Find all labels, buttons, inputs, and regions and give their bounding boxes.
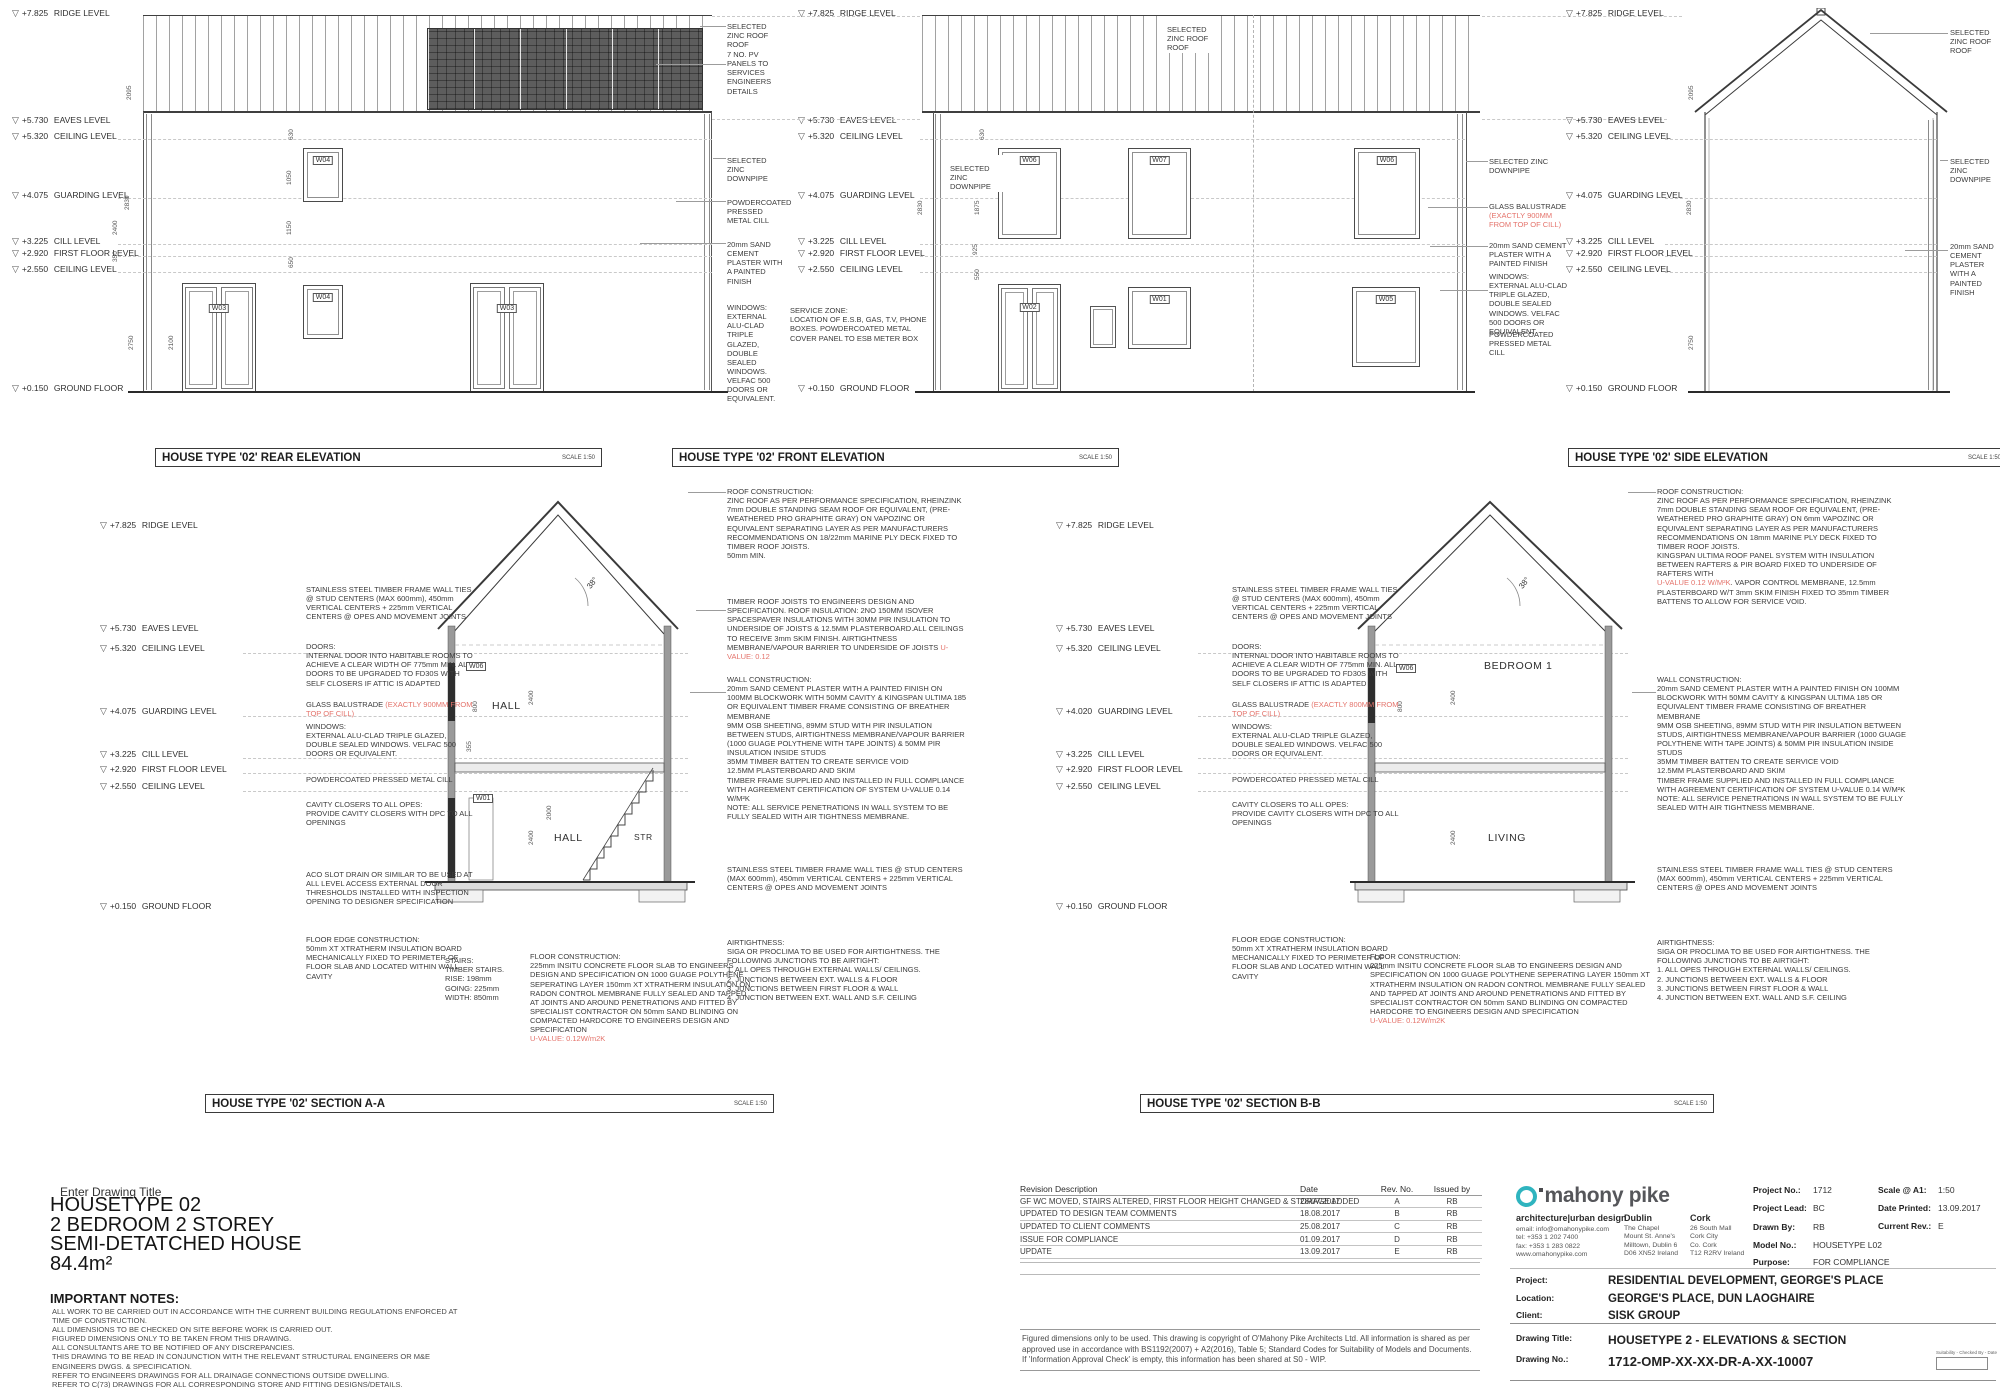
office-line: Mount St. Anne's (1624, 1233, 1678, 1241)
level-triangle-icon (1056, 749, 1063, 759)
level-triangle-icon (100, 643, 107, 653)
annotation-note: GLASS BALUSTRADE (EXACTLY 900MM FROM TOP… (1489, 202, 1569, 229)
level-marker: +5.320CEILING LEVEL (12, 131, 117, 141)
level-dash-line (1665, 256, 1937, 257)
level-marker: +3.225CILL LEVEL (100, 749, 188, 759)
contact-line: tel: +353 1 202 7400 (1516, 1234, 1609, 1242)
room-label: STR (634, 832, 653, 842)
logo-apostrophe-icon (1539, 1188, 1543, 1192)
level-dash-line (712, 16, 920, 17)
divider (1020, 1274, 1480, 1275)
window-tag: W01 (473, 794, 493, 803)
level-triangle-icon (100, 764, 107, 774)
window-tag: W02 (1019, 303, 1039, 312)
dimension-label: 350 (112, 251, 119, 262)
leader-line (1466, 161, 1488, 162)
architectural-drawing-sheet: +7.825RIDGE LEVEL +5.730EAVES LEVEL +5.3… (0, 0, 2000, 1388)
field-row: Drawn By:RB (1753, 1222, 1825, 1232)
level-dash-line (118, 244, 712, 245)
level-triangle-icon (100, 706, 107, 716)
side-elevation-titlebar: HOUSE TYPE '02' SIDE ELEVATION SCALE 1:5… (1568, 448, 2000, 467)
leader-line (656, 64, 726, 65)
dimension-label: 1875 (974, 201, 981, 215)
office-lines: The ChapelMount St. Anne'sMilltown, Dubl… (1624, 1225, 1678, 1259)
dimension-label: 550 (974, 269, 981, 280)
company-tagline: architecture|urban design (1516, 1213, 1627, 1223)
window-tag: W07 (1149, 156, 1169, 165)
contact-line: fax: +353 1 283 0822 (1516, 1243, 1609, 1251)
annotation-note: SELECTED ZINC DOWNPIPE (1489, 157, 1569, 175)
rear-elevation-titlebar: HOUSE TYPE '02' REAR ELEVATION SCALE 1:5… (155, 448, 602, 467)
annotation-note: POWDERCOATED PRESSED METAL CILL (727, 198, 785, 225)
annotation-note: 20mm SAND CEMENT PLASTER WITH A PAINTED … (1950, 242, 1997, 297)
level-marker: +2.920FIRST FLOOR LEVEL (798, 248, 925, 258)
project-info-row: Project:RESIDENTIAL DEVELOPMENT, GEORGE'… (1516, 1275, 1883, 1287)
level-triangle-icon (12, 383, 19, 393)
window: W05 (1352, 287, 1420, 367)
annotation-note: CAVITY CLOSERS TO ALL OPES: PROVIDE CAVI… (306, 800, 478, 827)
drawing-title: HOUSE TYPE '02' FRONT ELEVATION (679, 452, 885, 464)
revision-table: Revision Description Date Rev. No. Issue… (1020, 1183, 1482, 1259)
annotation-note: GLASS BALUSTRADE (EXACTLY 900MM FROM TOP… (306, 700, 478, 718)
level-marker: +3.225CILL LEVEL (1566, 236, 1654, 246)
level-triangle-icon (12, 248, 19, 258)
office-lines: 26 South MallCork CityCo. CorkT12 R2RV I… (1690, 1225, 1744, 1259)
level-marker: +3.225CILL LEVEL (12, 236, 100, 246)
leader-line (1628, 492, 1656, 493)
level-dash-line (712, 119, 920, 120)
dimension-label: 2750 (128, 336, 135, 350)
level-triangle-icon (100, 781, 107, 791)
level-dash-line (920, 139, 1465, 140)
level-triangle-icon (100, 623, 107, 633)
front-roof-note: SELECTED ZINC ROOF ROOF (1167, 16, 1219, 53)
annotation-note: POWDERCOATED PRESSED METAL CILL (1232, 775, 1404, 784)
pv-panels (427, 28, 703, 110)
annotation-note: STAINLESS STEEL TIMBER FRAME WALL TIES @… (1657, 865, 1907, 892)
scale-label: SCALE 1:50 (562, 455, 595, 461)
annotation-note: DOORS: INTERNAL DOOR INTO HABITABLE ROOM… (306, 642, 478, 688)
level-triangle-icon (1566, 248, 1573, 258)
leader-line (690, 692, 726, 693)
level-dash-line (920, 244, 1465, 245)
annotation-note: TIMBER ROOF JOISTS TO ENGINEERS DESIGN A… (727, 597, 967, 661)
dimension-label: 2000 (546, 806, 553, 820)
leader-line (700, 26, 726, 27)
drawing-title: HOUSE TYPE '02' SECTION B-B (1147, 1098, 1321, 1110)
important-note-line: ALL WORK TO BE CARRIED OUT IN ACCORDANCE… (52, 1307, 457, 1316)
level-dash-line (1665, 272, 1937, 273)
level-marker: +2.550CEILING LEVEL (1566, 264, 1671, 274)
leader-line (696, 610, 726, 611)
window-tag: W06 (1019, 156, 1039, 165)
level-marker: +5.320CEILING LEVEL (100, 643, 205, 653)
leader-line (1440, 290, 1488, 291)
divider (1020, 1262, 1480, 1263)
leader-line (1870, 33, 1948, 34)
section-a-titlebar: HOUSE TYPE '02' SECTION A-A SCALE 1:50 (205, 1094, 774, 1113)
front-downpipe-left (935, 114, 941, 390)
field-row: Scale @ A1:1:50 (1878, 1185, 1955, 1195)
office-line: T12 R2RV Ireland (1690, 1250, 1744, 1258)
annotation-note: WINDOWS: EXTERNAL ALU-CLAD TRIPLE GLAZED… (727, 303, 785, 404)
room-label: HALL (492, 700, 521, 712)
divider (1510, 1268, 1996, 1269)
project-info-row: Client:SISK GROUP (1516, 1310, 1680, 1322)
omahony-pike-logo: mahony pike (1516, 1184, 1670, 1208)
level-triangle-icon (798, 248, 805, 258)
important-note-line: ENGINEERS DWGS. & SPECIFICATION. (52, 1362, 457, 1371)
level-triangle-icon (1056, 706, 1063, 716)
level-marker: +7.825RIDGE LEVEL (100, 520, 198, 530)
important-note-line: FIGURED DIMENSIONS ONLY TO BE TAKEN FROM… (52, 1334, 457, 1343)
floor-construction-note: FLOOR CONSTRUCTION: 225mm INSITU CONCRET… (530, 943, 755, 1044)
leader-line (1905, 250, 1948, 251)
level-marker: +2.920FIRST FLOOR LEVEL (100, 764, 227, 774)
dimension-label: 2830 (1686, 201, 1693, 215)
divider (1510, 1323, 1996, 1324)
office-line: 26 South Mall (1690, 1225, 1744, 1233)
important-note-line: THIS DRAWING TO BE READ IN CONJUNCTION W… (52, 1352, 457, 1361)
annotation-note: WINDOWS: EXTERNAL ALU-CLAD TRIPLE GLAZED… (1489, 272, 1569, 336)
drawing-title: HOUSE TYPE '02' SECTION A-A (212, 1098, 385, 1110)
important-notes: ALL WORK TO BE CARRIED OUT IN ACCORDANCE… (52, 1307, 457, 1388)
level-triangle-icon (1056, 764, 1063, 774)
important-note-line: ALL DIMENSIONS TO BE CHECKED ON SITE BEF… (52, 1325, 457, 1334)
level-marker: +2.550CEILING LEVEL (1056, 781, 1161, 791)
dimension-label: 925 (972, 244, 979, 255)
dimension-label: 2750 (1688, 336, 1695, 350)
revision-row: ISSUE FOR COMPLIANCE 01.09.2017 D RB (1020, 1233, 1482, 1246)
office-line: Milltown, Dublin 6 (1624, 1242, 1678, 1250)
level-marker: +4.075GUARDING LEVEL (12, 190, 129, 200)
contact-line: www.omahonypike.com (1516, 1251, 1609, 1259)
logo-o-icon (1516, 1186, 1537, 1207)
annotation-note: DOORS: INTERNAL DOOR INTO HABITABLE ROOM… (1232, 642, 1404, 688)
floor-construction-note: FLOOR CONSTRUCTION: 225mm INSITU CONCRET… (1370, 943, 1660, 1025)
annotation-note: 20mm SAND CEMENT PLASTER WITH A PAINTED … (727, 240, 785, 286)
level-triangle-icon (1056, 643, 1063, 653)
drawing-title: HOUSE TYPE '02' REAR ELEVATION (162, 452, 361, 464)
level-marker: +2.550CEILING LEVEL (798, 264, 903, 274)
annotation-note: WINDOWS: EXTERNAL ALU-CLAD TRIPLE GLAZED… (306, 722, 478, 759)
level-marker: +2.550CEILING LEVEL (100, 781, 205, 791)
field-row: Project Lead:BC (1753, 1203, 1825, 1213)
service-zone-note: SERVICE ZONE: LOCATION OF E.S.B, GAS, T.… (790, 297, 930, 343)
level-marker: +5.730EAVES LEVEL (12, 115, 110, 125)
annotation-note: WALL CONSTRUCTION: 20mm SAND CEMENT PLAS… (1657, 675, 1907, 812)
annotation-note: STAINLESS STEEL TIMBER FRAME WALL TIES @… (306, 585, 478, 622)
level-triangle-icon (100, 901, 107, 911)
level-marker: +0.150GROUND FLOOR (1566, 383, 1677, 393)
level-marker: +2.550CEILING LEVEL (12, 264, 117, 274)
dimension-label: 630 (288, 129, 295, 140)
level-triangle-icon (12, 115, 19, 125)
door-leaf (509, 287, 541, 389)
scale-label: SCALE 1:50 (1968, 455, 2000, 461)
window: W01 (1128, 287, 1191, 349)
leader-line (1430, 246, 1488, 247)
window: W06 (1354, 148, 1420, 239)
dimension-label: 1150 (286, 221, 293, 235)
dimension-label: 650 (288, 257, 295, 268)
important-note-line: TIME OF CONSTRUCTION. (52, 1316, 457, 1325)
leader-line (640, 243, 726, 244)
level-marker: +0.150GROUND FLOOR (12, 383, 123, 393)
level-triangle-icon (1566, 264, 1573, 274)
level-triangle-icon (1566, 190, 1573, 200)
level-marker: +4.075GUARDING LEVEL (798, 190, 915, 200)
scale-label: SCALE 1:50 (1079, 455, 1112, 461)
room-label: HALL (554, 832, 583, 844)
field-row: Purpose:FOR COMPLIANCE (1753, 1257, 1890, 1267)
leader-line (676, 201, 726, 202)
level-marker: +7.825RIDGE LEVEL (1566, 8, 1664, 18)
front-elevation-titlebar: HOUSE TYPE '02' FRONT ELEVATION SCALE 1:… (672, 448, 1119, 467)
annotation-note: AIRTIGHTNESS: SIGA OR PROCLIMA TO BE USE… (1657, 938, 1907, 1002)
level-triangle-icon (12, 236, 19, 246)
level-marker: +5.730EAVES LEVEL (1056, 623, 1154, 633)
level-triangle-icon (12, 8, 19, 18)
annotation-note: 20mm SAND CEMENT PLASTER WITH A PAINTED … (1489, 241, 1569, 268)
level-triangle-icon (1566, 383, 1573, 393)
revision-table-header: Revision Description Date Rev. No. Issue… (1020, 1183, 1482, 1196)
level-marker: +0.150GROUND FLOOR (798, 383, 909, 393)
window-tag: W01 (1149, 295, 1169, 304)
dimension-label: 630 (979, 129, 986, 140)
level-triangle-icon (798, 383, 805, 393)
level-dash-line (1665, 198, 1937, 199)
housetype-title-line: SEMI-DETATCHED HOUSE (50, 1235, 302, 1255)
level-marker: +5.730EAVES LEVEL (100, 623, 198, 633)
office-line: The Chapel (1624, 1225, 1678, 1233)
door-leaf (221, 287, 253, 389)
dublin-office: Dublin The ChapelMount St. Anne'sMilltow… (1624, 1213, 1678, 1259)
level-triangle-icon (12, 131, 19, 141)
leader-line (1632, 692, 1656, 693)
level-dash-line (118, 139, 712, 140)
annotation-note: STAINLESS STEEL TIMBER FRAME WALL TIES @… (727, 865, 967, 892)
level-marker: +4.075GUARDING LEVEL (100, 706, 217, 716)
annotation-note: ACO SLOT DRAIN OR SIMILAR TO BE USED AT … (306, 870, 478, 907)
rear-downpipe-right (704, 114, 710, 390)
annotation-note: SELECTED ZINC DOWNPIPE (727, 156, 785, 183)
level-triangle-icon (1566, 115, 1573, 125)
office-line: D06 XN52 Ireland (1624, 1250, 1678, 1258)
annotation-note: SELECTED ZINC DOWNPIPE (1950, 157, 1997, 184)
level-triangle-icon (12, 264, 19, 274)
side-ground-line (1688, 391, 1950, 393)
field-row: Project No.:1712 (1753, 1185, 1832, 1195)
level-triangle-icon (798, 190, 805, 200)
level-marker: +0.150GROUND FLOOR (1056, 901, 1167, 911)
office-line: Cork City (1690, 1233, 1744, 1241)
level-marker: +2.920FIRST FLOOR LEVEL (1056, 764, 1183, 774)
level-triangle-icon (798, 131, 805, 141)
annotation-note: CAVITY CLOSERS TO ALL OPES: PROVIDE CAVI… (1232, 800, 1404, 827)
level-triangle-icon (1566, 131, 1573, 141)
housetype-title: HOUSETYPE 022 BEDROOM 2 STOREYSEMI-DETAT… (50, 1196, 302, 1274)
front-downpipe-right (1457, 114, 1463, 390)
window-tag: W03 (209, 304, 229, 313)
level-triangle-icon (1566, 8, 1573, 18)
housetype-title-line: 84.4m² (50, 1255, 302, 1275)
level-dash-line (1665, 244, 1937, 245)
field-row: Model No.:HOUSETYPE L02 (1753, 1240, 1882, 1250)
dimension-label: 2400 (528, 831, 535, 845)
level-triangle-icon (1056, 781, 1063, 791)
window-tag: W04 (313, 293, 333, 302)
leader-line (1428, 207, 1488, 208)
door: W03 (182, 283, 256, 393)
important-notes-title: IMPORTANT NOTES: (50, 1291, 179, 1306)
window: W04 (303, 148, 343, 202)
company-contact: email: info@omahonypike.comtel: +353 1 2… (1516, 1226, 1609, 1260)
dimension-label: 2400 (528, 691, 535, 705)
level-triangle-icon (100, 749, 107, 759)
suitability-box (1936, 1357, 1988, 1370)
dimension-label: 2095 (1688, 86, 1695, 100)
window-tag: W06 (466, 662, 486, 671)
front-ground-line (915, 391, 1475, 393)
annotation-note: POWDERCOATED PRESSED METAL CILL (1489, 330, 1569, 357)
level-triangle-icon (1056, 901, 1063, 911)
door-leaf (473, 287, 505, 389)
window: W04 (303, 285, 343, 339)
level-marker: +5.730EAVES LEVEL (1566, 115, 1664, 125)
level-triangle-icon (100, 520, 107, 530)
window-tag: W06 (1377, 156, 1397, 165)
office-title: Dublin (1624, 1213, 1678, 1223)
room-label: BEDROOM 1 (1484, 660, 1552, 672)
front-downpipe-note: SELECTED ZINC DOWNPIPE (950, 155, 1008, 192)
level-dash-line (920, 272, 1465, 273)
revision-row: GF WC MOVED, STAIRS ALTERED, FIRST FLOOR… (1020, 1196, 1482, 1209)
window-tag: W04 (313, 156, 333, 165)
level-marker: +3.225CILL LEVEL (798, 236, 886, 246)
level-triangle-icon (1056, 623, 1063, 633)
door-leaf (185, 287, 217, 389)
dimension-label: 2830 (124, 196, 131, 210)
level-marker: +5.320CEILING LEVEL (1056, 643, 1161, 653)
office-line: Co. Cork (1690, 1242, 1744, 1250)
dimension-label: 2400 (1450, 831, 1457, 845)
revision-row: UPDATE 13.09.2017 E RB (1020, 1246, 1482, 1259)
level-triangle-icon (798, 236, 805, 246)
window-tag: W03 (497, 304, 517, 313)
annotation-note: SELECTED ZINC ROOF ROOF (1950, 28, 1997, 55)
scale-label: SCALE 1:50 (734, 1101, 767, 1107)
leader-line (688, 492, 726, 493)
annotation-note: STAINLESS STEEL TIMBER FRAME WALL TIES @… (1232, 585, 1404, 622)
housetype-title-line: HOUSETYPE 02 (50, 1196, 302, 1216)
annotation-note: GLASS BALUSTRADE (EXACTLY 800MM FROM TOP… (1232, 700, 1404, 718)
revision-row: UPDATED TO DESIGN TEAM COMMENTS 18.08.20… (1020, 1208, 1482, 1221)
level-marker: +5.730EAVES LEVEL (798, 115, 896, 125)
contact-line: email: info@omahonypike.com (1516, 1226, 1609, 1234)
level-marker: +7.825RIDGE LEVEL (1056, 520, 1154, 530)
field-row: Date Printed:13.09.2017 (1878, 1203, 1981, 1213)
rear-ground-line (128, 391, 728, 393)
drawing-info-row: Drawing Title:HOUSETYPE 2 - ELEVATIONS &… (1516, 1333, 1846, 1347)
revision-row: UPDATED TO CLIENT COMMENTS 25.08.2017 C … (1020, 1221, 1482, 1234)
stairs-note: STAIRS: TIMBER STAIRS. RISE: 198mm GOING… (445, 947, 525, 1002)
scale-label: SCALE 1:50 (1674, 1101, 1707, 1107)
field-row: Current Rev.:E (1878, 1221, 1944, 1231)
level-dash-line (1665, 139, 1937, 140)
drawing-info-row: Drawing No.:1712-OMP-XX-XX-DR-A-XX-10007 (1516, 1354, 1813, 1369)
dimension-label: 1050 (286, 171, 293, 185)
copyright-disclaimer: Figured dimensions only to be used. This… (1020, 1329, 1480, 1371)
level-triangle-icon (798, 115, 805, 125)
level-dash-line (920, 256, 1465, 257)
annotation-note: SELECTED ZINC ROOF ROOF (727, 22, 785, 49)
dimension-label: 2400 (112, 221, 119, 235)
annotation-note: ROOF CONSTRUCTION: ZINC ROOF AS PER PERF… (1657, 487, 1907, 606)
section-b-titlebar: HOUSE TYPE '02' SECTION B-B SCALE 1:50 (1140, 1094, 1714, 1113)
leader-line (1940, 160, 1948, 161)
level-marker: +4.020GUARDING LEVEL (1056, 706, 1173, 716)
side-downpipe (1928, 120, 1934, 390)
level-triangle-icon (798, 264, 805, 274)
project-info-row: Location:GEORGE'S PLACE, DUN LAOGHAIRE (1516, 1293, 1815, 1305)
important-note-line: ALL CONSULTANTS ARE TO BE NOTIFIED OF AN… (52, 1343, 457, 1352)
drawing-title: HOUSE TYPE '02' SIDE ELEVATION (1575, 452, 1768, 464)
annotation-note: ROOF CONSTRUCTION: ZINC ROOF AS PER PERF… (727, 487, 967, 560)
level-marker: +0.150GROUND FLOOR (100, 901, 211, 911)
window-tag: W06 (1396, 664, 1416, 673)
cork-office: Cork 26 South MallCork CityCo. CorkT12 R… (1690, 1213, 1744, 1259)
level-marker: +5.320CEILING LEVEL (798, 131, 903, 141)
level-dash-line (118, 198, 712, 199)
annotation-note: POWDERCOATED PRESSED METAL CILL (306, 775, 478, 784)
dimension-label: 2100 (168, 336, 175, 350)
level-triangle-icon (12, 190, 19, 200)
level-triangle-icon (1566, 236, 1573, 246)
annotation-note: AIRTIGHTNESS: SIGA OR PROCLIMA TO BE USE… (727, 938, 967, 1002)
important-note-line: REFER TO ENGINEERS DRAWINGS FOR ALL DRAI… (52, 1371, 457, 1380)
door: W02 (998, 284, 1061, 393)
rear-downpipe-left (146, 114, 152, 390)
room-label: LIVING (1488, 832, 1526, 844)
annotation-note: 7 NO. PV PANELS TO SERVICES ENGINEERS DE… (727, 50, 785, 96)
logo-text: mahony pike (1545, 1184, 1670, 1208)
level-dash-line (118, 272, 712, 273)
dimension-label: 2400 (1450, 691, 1457, 705)
level-marker: +3.225CILL LEVEL (1056, 749, 1144, 759)
window: W07 (1128, 148, 1191, 239)
level-marker: +5.320CEILING LEVEL (1566, 131, 1671, 141)
level-marker: +7.825RIDGE LEVEL (12, 8, 110, 18)
level-dash-line (118, 256, 712, 257)
divider (1510, 1380, 1996, 1381)
level-triangle-icon (1056, 520, 1063, 530)
leader-line (713, 158, 726, 159)
important-note-line: REFER TO C(73) DRAWINGS FOR ALL CORRESPO… (52, 1380, 457, 1388)
annotation-note: WALL CONSTRUCTION: 20mm SAND CEMENT PLAS… (727, 675, 967, 821)
dimension-label: 2830 (917, 201, 924, 215)
annotation-note: WINDOWS: EXTERNAL ALU-CLAD TRIPLE GLAZED… (1232, 722, 1404, 759)
side-elevation-drawing (1690, 8, 1955, 398)
door: W03 (470, 283, 544, 393)
esb-meter-box (1090, 306, 1116, 348)
window-tag: W05 (1376, 295, 1396, 304)
dimension-label: 2095 (126, 86, 133, 100)
suitability-label: Suitability - Checked By - Date (1936, 1350, 1997, 1355)
party-wall-dash (1253, 15, 1254, 392)
office-title: Cork (1690, 1213, 1744, 1223)
revision-rows: GF WC MOVED, STAIRS ALTERED, FIRST FLOOR… (1020, 1196, 1482, 1259)
